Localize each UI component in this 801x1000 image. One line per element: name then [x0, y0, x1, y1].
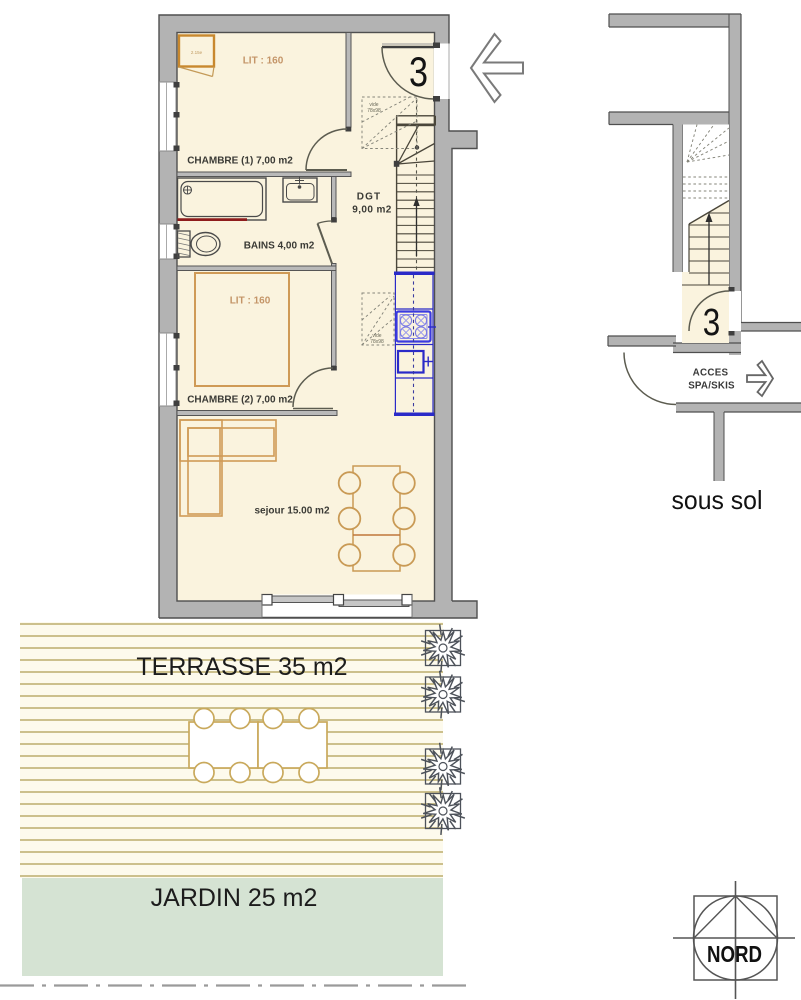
svg-text:DGT: DGT — [357, 192, 381, 203]
svg-text:2.15e: 2.15e — [191, 50, 203, 55]
svg-text:3: 3 — [409, 48, 428, 95]
svg-text:sejour 15.00 m2: sejour 15.00 m2 — [254, 505, 329, 516]
svg-text:ACCES: ACCES — [693, 368, 729, 379]
svg-text:sous sol: sous sol — [672, 485, 763, 515]
svg-text:CHAMBRE (1) 7,00 m2: CHAMBRE (1) 7,00 m2 — [187, 156, 293, 167]
svg-text:SPA/SKIS: SPA/SKIS — [688, 380, 735, 391]
svg-text:TERRASSE 35 m2: TERRASSE 35 m2 — [136, 653, 347, 681]
svg-text:LIT : 160: LIT : 160 — [230, 296, 271, 307]
svg-text:JARDIN 25 m2: JARDIN 25 m2 — [151, 884, 318, 912]
svg-text:BAINS 4,00 m2: BAINS 4,00 m2 — [244, 241, 315, 252]
svg-text:78x98: 78x98 — [370, 339, 384, 345]
svg-text:78x98: 78x98 — [367, 108, 381, 114]
svg-text:CHAMBRE (2) 7,00 m2: CHAMBRE (2) 7,00 m2 — [187, 395, 293, 406]
svg-text:3: 3 — [703, 302, 721, 344]
svg-text:LIT : 160: LIT : 160 — [243, 56, 284, 67]
svg-text:NORD: NORD — [707, 941, 762, 967]
svg-text:9,00 m2: 9,00 m2 — [352, 205, 392, 216]
